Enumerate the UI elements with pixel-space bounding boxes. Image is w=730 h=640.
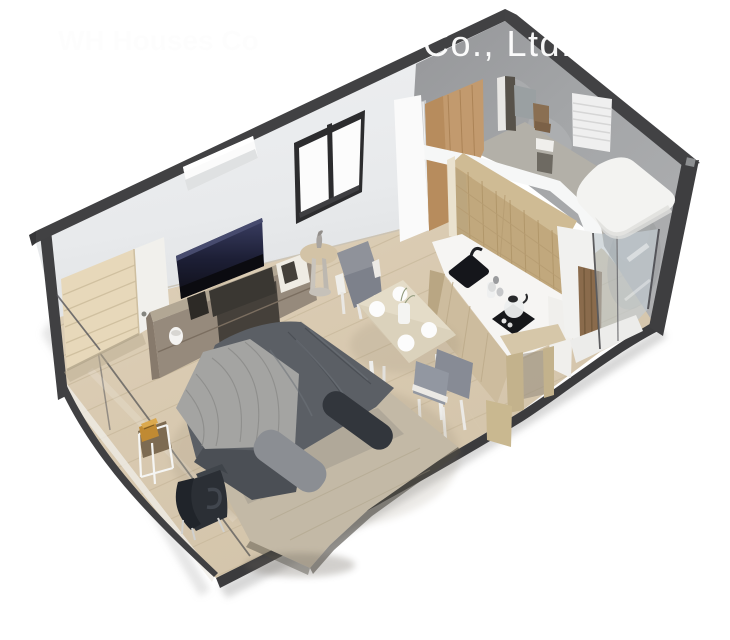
svg-text:WH Houses Co: WH Houses Co (58, 25, 259, 56)
svg-text:Co., Ltd.: Co., Ltd. (423, 23, 573, 64)
